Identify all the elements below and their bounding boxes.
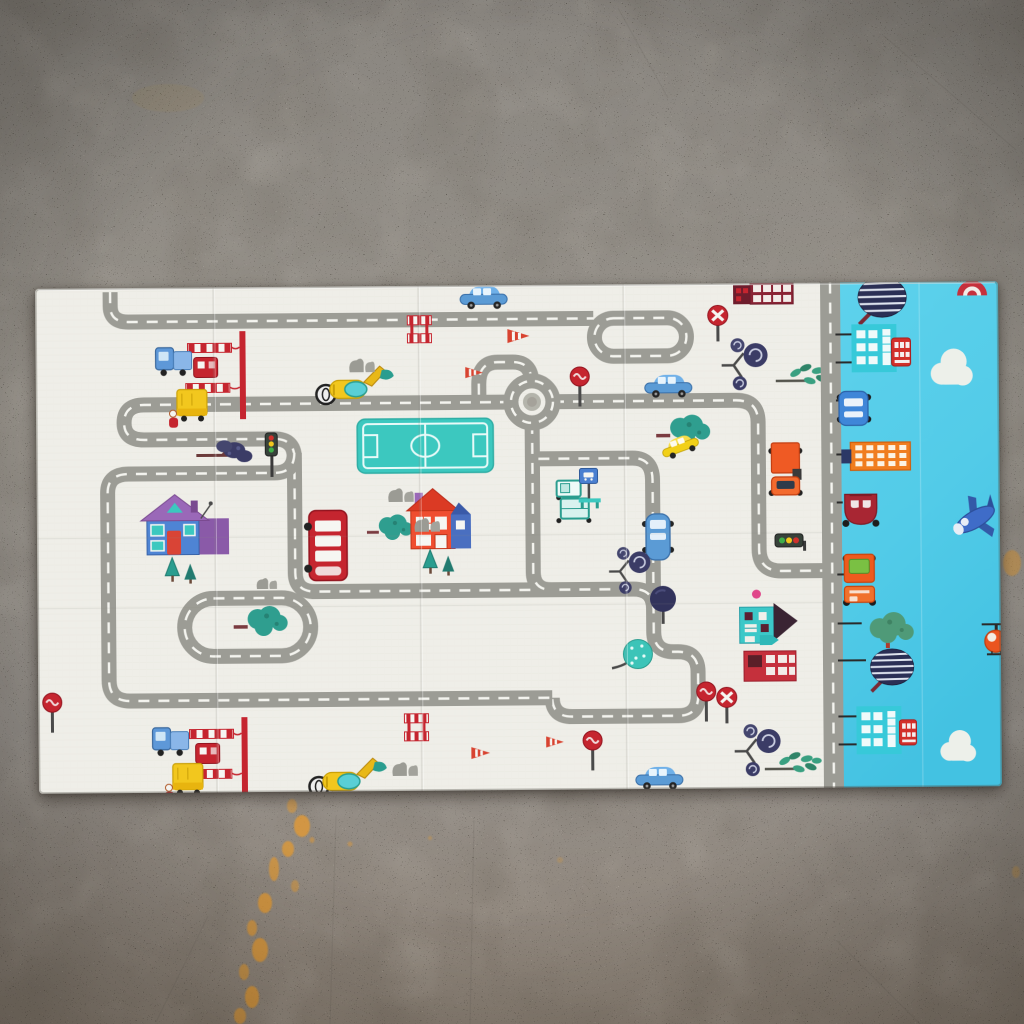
mat-white-section <box>35 282 836 794</box>
play-mat <box>35 281 1002 794</box>
motif-dot-pink <box>752 590 761 599</box>
motif-bbuilding-teal <box>856 706 901 754</box>
motif-field <box>357 418 493 473</box>
photo-scene <box>0 0 1024 1024</box>
motif-van-blue-v <box>642 514 674 560</box>
motif-bbuilding-orange <box>841 442 910 471</box>
motif-bcar-blue <box>837 391 872 425</box>
motif-bcar-darkred <box>842 494 879 527</box>
play-mat-print <box>35 281 1002 794</box>
motif-bbus-red <box>891 338 910 366</box>
roundabout-island-center <box>527 397 537 407</box>
motif-bus-red <box>304 510 348 580</box>
motif-bbuilding-teal <box>851 324 896 372</box>
motif-truck-orange-v <box>768 443 802 496</box>
motif-btruck-orange <box>843 554 876 606</box>
mat-blue-section <box>835 281 1002 787</box>
mat-divider-road <box>830 283 834 788</box>
motif-bbus-red <box>899 720 916 745</box>
